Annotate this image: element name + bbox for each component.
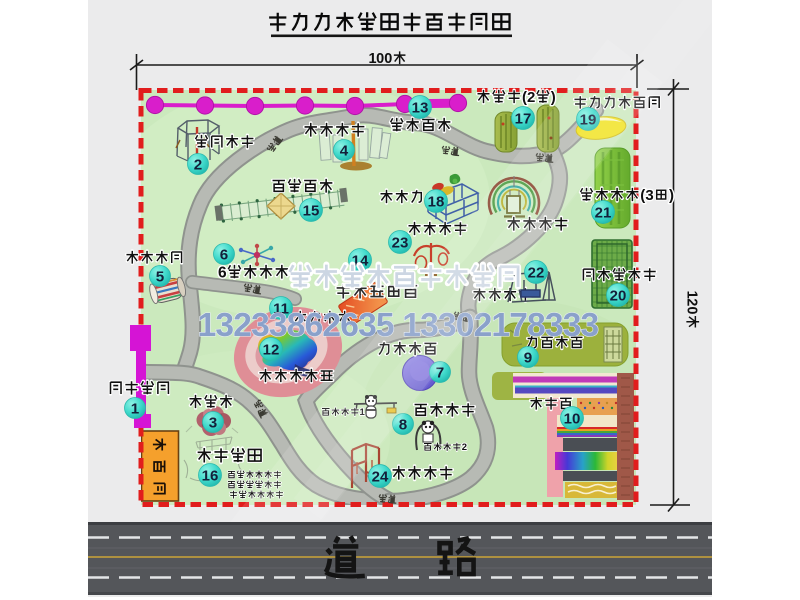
svg-text:16: 16	[202, 467, 219, 484]
svg-text:5: 5	[156, 269, 165, 286]
svg-text:3: 3	[645, 187, 653, 204]
svg-text:4: 4	[340, 143, 349, 160]
svg-text:22: 22	[528, 264, 545, 281]
svg-text:2: 2	[194, 157, 202, 174]
svg-text:21: 21	[595, 204, 612, 221]
svg-text:13: 13	[412, 99, 429, 116]
svg-text:1: 1	[131, 401, 140, 418]
svg-text:): )	[669, 187, 674, 204]
svg-text:6: 6	[218, 264, 227, 281]
svg-text:): )	[551, 89, 556, 106]
svg-text:0: 0	[384, 51, 392, 67]
svg-text:6: 6	[220, 247, 228, 264]
svg-text:0: 0	[684, 306, 700, 314]
svg-text:17: 17	[515, 110, 532, 127]
svg-text:24: 24	[372, 468, 389, 485]
svg-text:2: 2	[684, 298, 700, 306]
svg-text:9: 9	[524, 350, 532, 367]
svg-text:0: 0	[376, 51, 384, 67]
svg-text:3: 3	[209, 415, 217, 432]
svg-text:18: 18	[428, 193, 445, 210]
svg-text:10: 10	[564, 410, 581, 427]
svg-text:15: 15	[303, 202, 320, 219]
svg-text:20: 20	[610, 287, 627, 304]
svg-text:23: 23	[392, 234, 409, 251]
svg-text:2: 2	[462, 442, 467, 453]
svg-text:2: 2	[527, 89, 535, 106]
